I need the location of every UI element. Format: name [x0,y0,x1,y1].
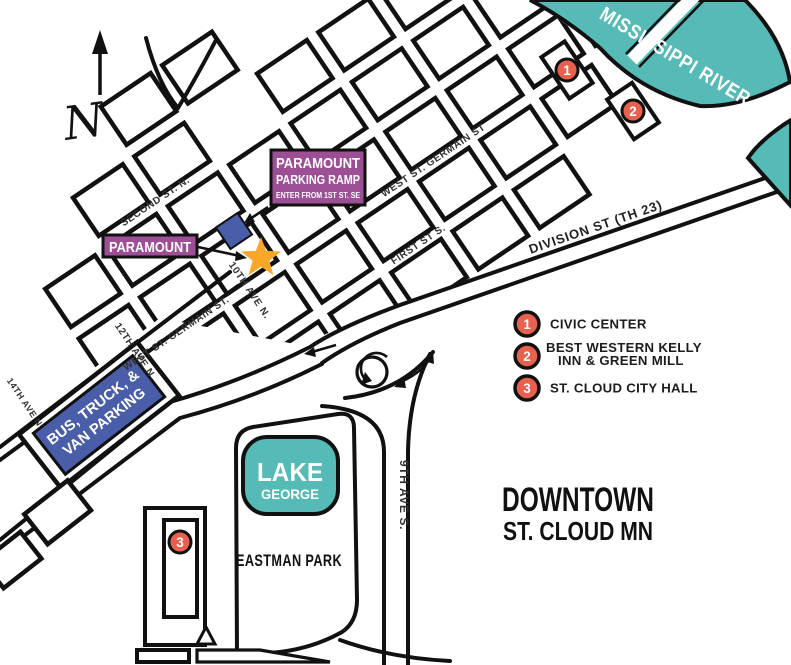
compass-n-label: N [59,92,109,151]
ramp-label-line1: PARAMOUNT [276,155,360,172]
lake-label-line1: LAKE [257,457,323,487]
paramount-label: PARAMOUNT [109,239,191,256]
park-label: EASTMAN PARK [236,551,342,570]
legend-marker-3-num: 3 [523,381,531,396]
city-block [24,480,91,544]
title-line1: DOWNTOWN [502,481,654,519]
legend-label-3: ST. CLOUD CITY HALL [550,381,698,396]
downtown-map: BUS, TRUCK, & VAN PARKING MISSISSIPPI RI… [0,0,791,665]
legend-label-1: CIVIC CENTER [550,317,647,332]
division-arrow-line [312,345,336,352]
marker-2-num: 2 [629,104,637,119]
legend-marker-1-num: 1 [523,317,531,332]
marker-1-num: 1 [563,63,571,78]
title-line2: ST. CLOUD MN [503,516,653,546]
street-label-14th-ave: 14TH AVE N. [5,376,46,431]
marker-3-num: 3 [176,535,184,550]
park-south-road [340,640,450,661]
map-svg: BUS, TRUCK, & VAN PARKING MISSISSIPPI RI… [0,0,791,665]
ramp-label-line3: ENTER FROM 1ST ST. SE [276,191,361,200]
legend-marker-2-num: 2 [523,349,531,364]
lake-label-line2: GEORGE [261,487,319,502]
ramp-label-line2: PARKING RAMP [276,172,360,187]
bottom-median-wedge [197,650,330,662]
street-label-9th-ave: 9TH AVE S. [397,460,411,530]
city-block [0,532,41,588]
north-arrow-icon [92,30,108,54]
legend-label-2-line2: INN & GREEN MILL [558,353,684,368]
legend: 1 CIVIC CENTER 2 BEST WESTERN KELLY INN … [515,312,702,400]
bottom-median [137,650,189,662]
